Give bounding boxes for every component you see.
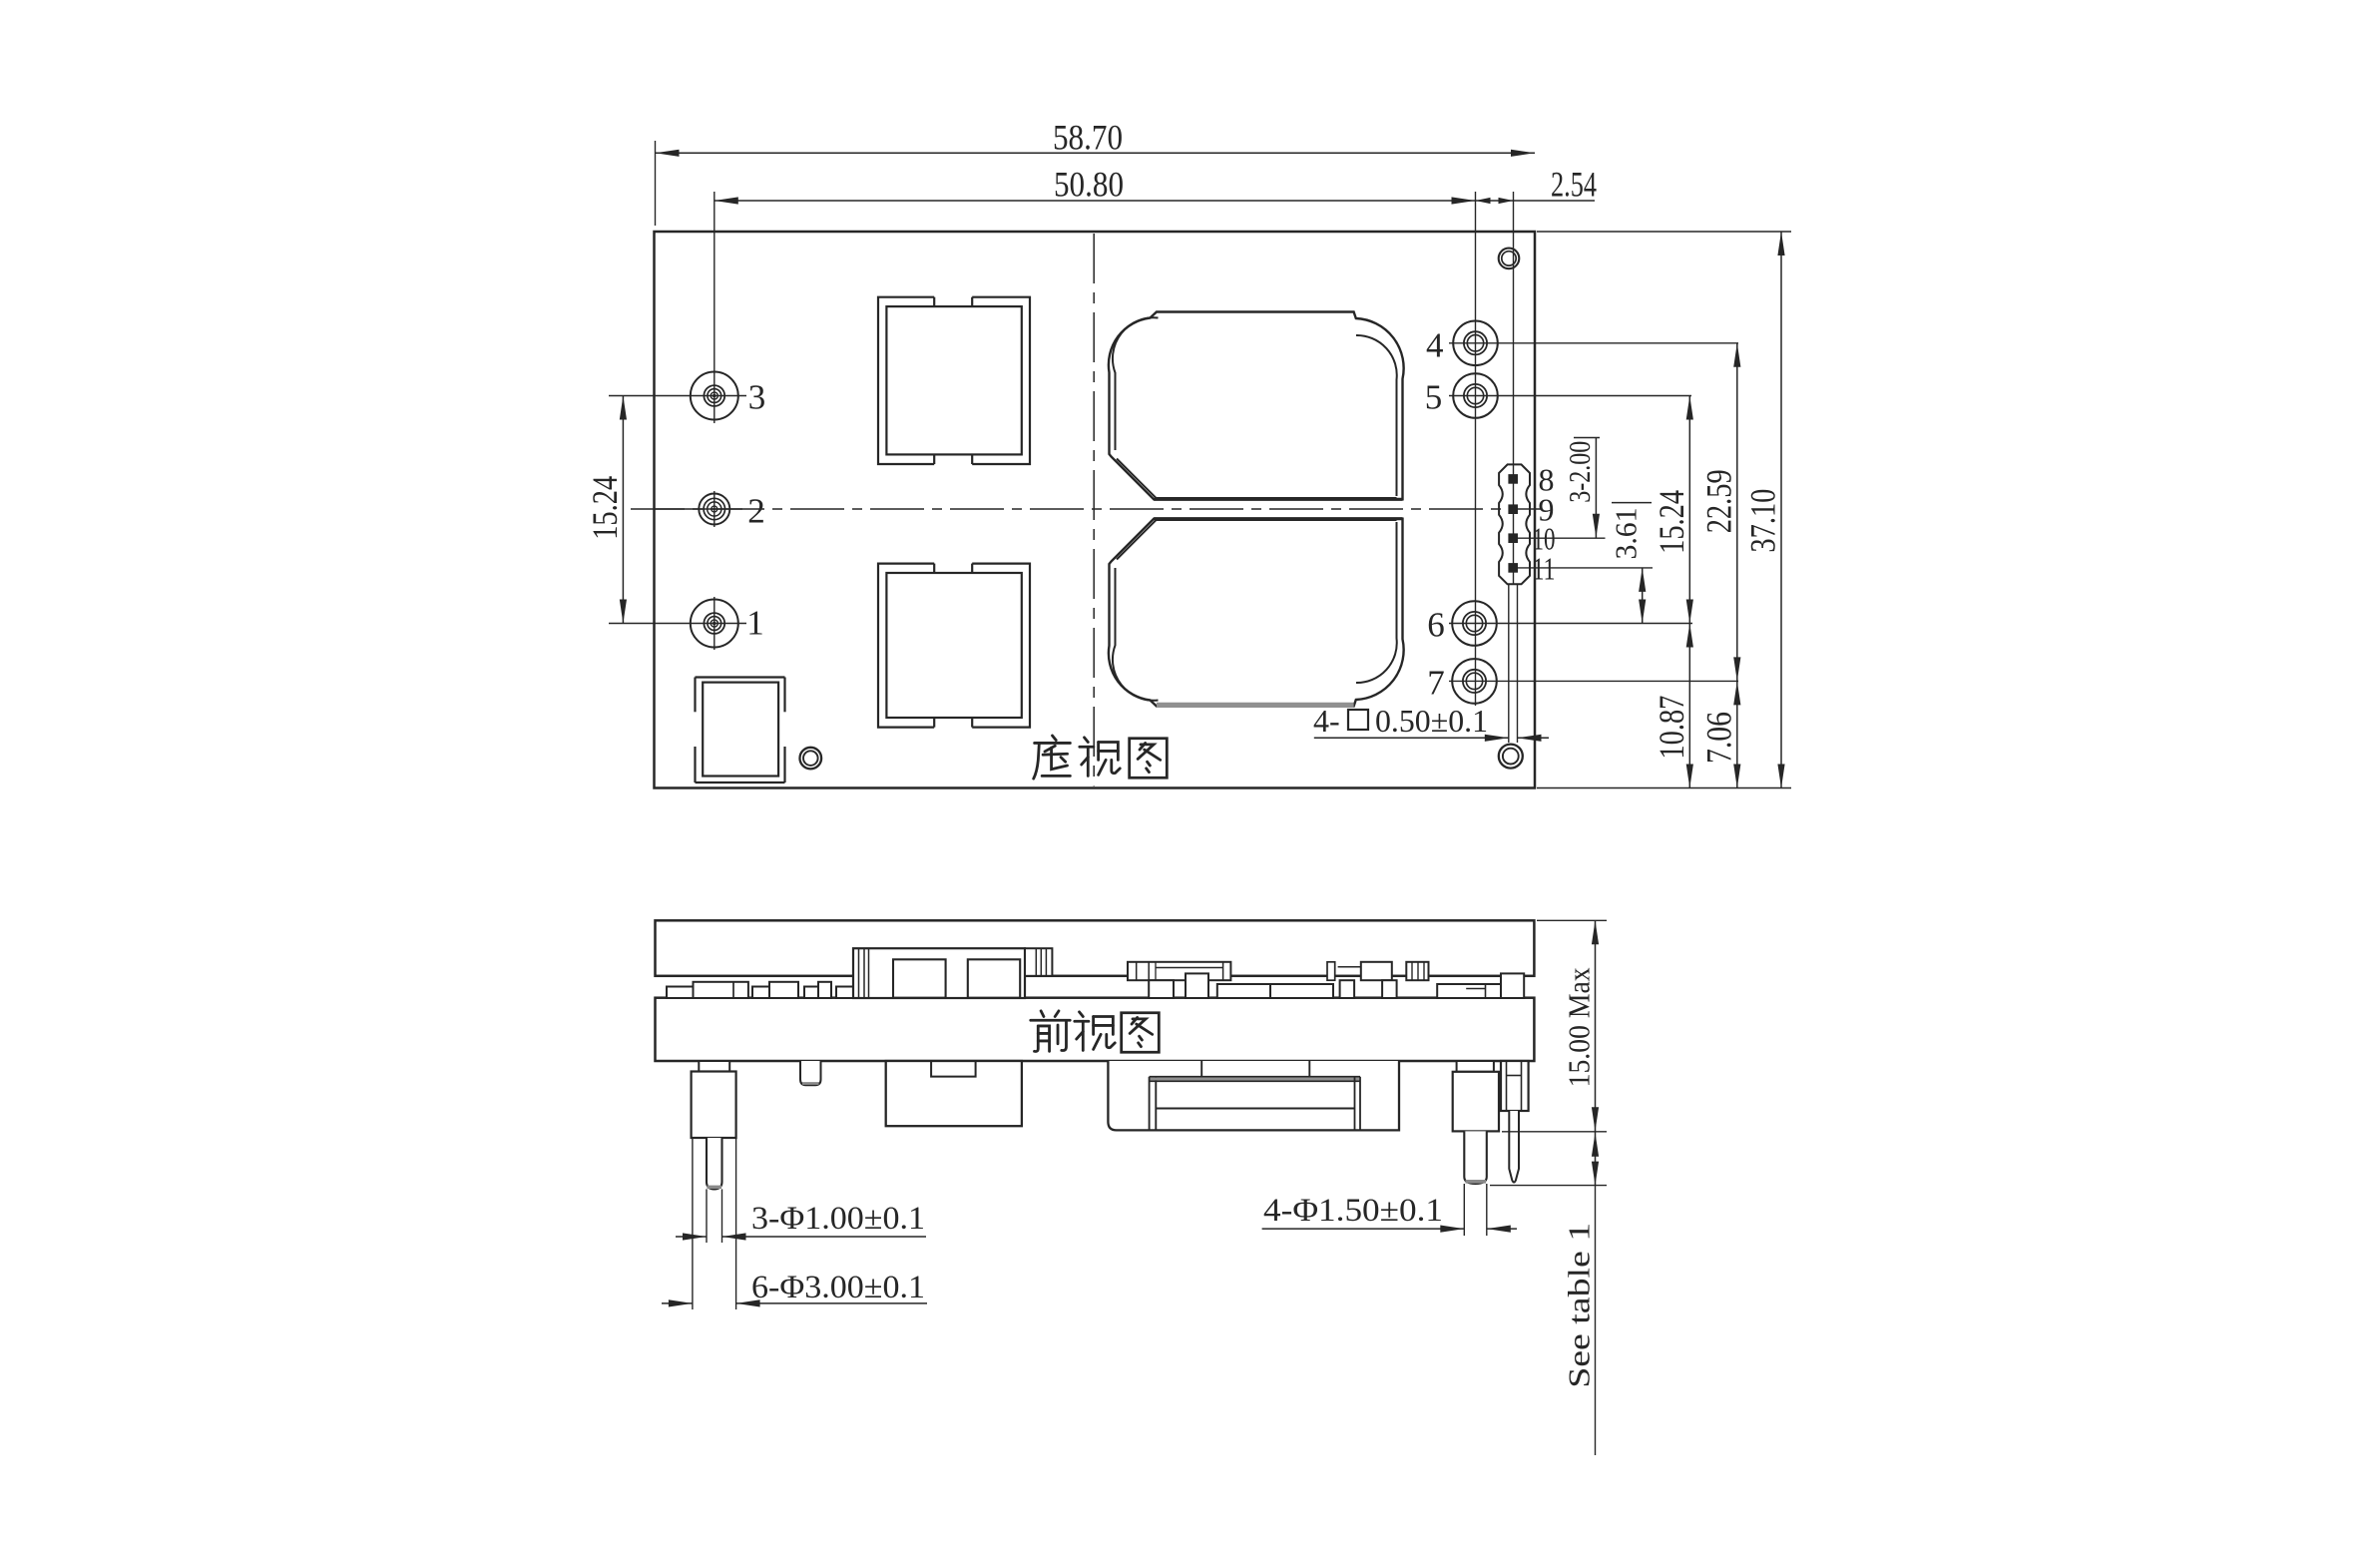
svg-text:22.59: 22.59 xyxy=(1699,469,1739,533)
svg-text:6-Φ3.00±0.1: 6-Φ3.00±0.1 xyxy=(751,1270,925,1305)
svg-text:4: 4 xyxy=(1426,326,1444,365)
svg-text:11: 11 xyxy=(1533,550,1556,586)
svg-text:50.80: 50.80 xyxy=(1054,165,1124,205)
svg-text:15.24: 15.24 xyxy=(585,476,625,540)
svg-text:6: 6 xyxy=(1427,606,1445,645)
svg-text:3: 3 xyxy=(748,378,766,417)
svg-text:15.24: 15.24 xyxy=(1652,490,1691,554)
svg-text:3.61: 3.61 xyxy=(1609,508,1644,560)
svg-text:4-: 4- xyxy=(1313,703,1340,739)
svg-text:See table 1: See table 1 xyxy=(1562,1223,1597,1388)
svg-text:0.50±0.1: 0.50±0.1 xyxy=(1375,703,1488,739)
svg-text:7: 7 xyxy=(1427,664,1445,703)
svg-text:10.87: 10.87 xyxy=(1652,696,1691,760)
svg-text:5: 5 xyxy=(1425,378,1443,417)
svg-text:3-Φ1.00±0.1: 3-Φ1.00±0.1 xyxy=(751,1201,925,1237)
svg-text:3-2.00: 3-2.00 xyxy=(1562,441,1597,503)
svg-text:2: 2 xyxy=(747,492,765,531)
svg-text:7.06: 7.06 xyxy=(1699,712,1739,764)
svg-text:2.54: 2.54 xyxy=(1551,165,1597,205)
svg-text:58.70: 58.70 xyxy=(1053,118,1123,158)
svg-text:37.10: 37.10 xyxy=(1743,489,1783,553)
svg-text:15.00 Max: 15.00 Max xyxy=(1562,967,1597,1087)
svg-text:4-Φ1.50±0.1: 4-Φ1.50±0.1 xyxy=(1263,1193,1443,1229)
svg-text:1: 1 xyxy=(746,604,764,643)
